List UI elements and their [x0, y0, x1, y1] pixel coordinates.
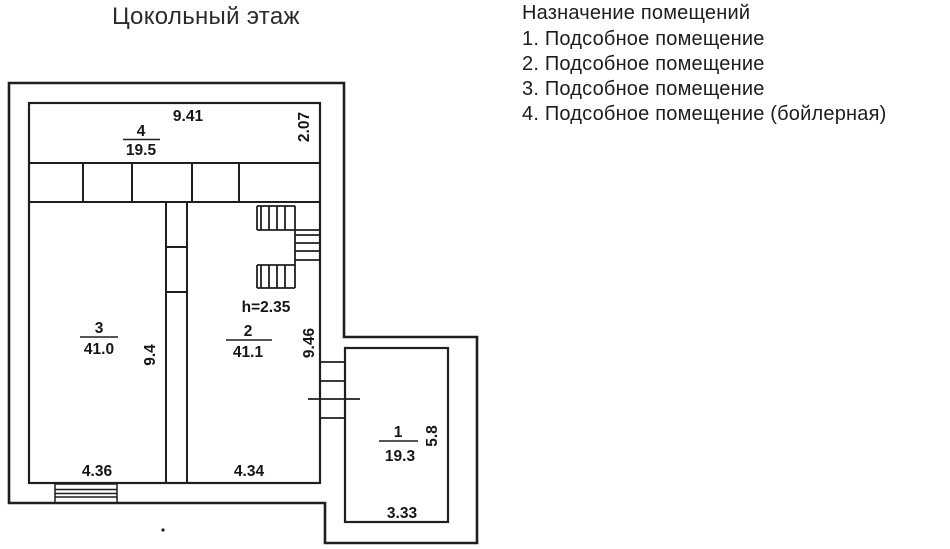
room-1-number: 1	[394, 424, 403, 441]
scan-speck	[161, 528, 164, 531]
partition-wall	[166, 202, 187, 483]
room-2-area: 41.1	[233, 344, 264, 361]
dim-room-1-height: 5.8	[424, 425, 441, 447]
room-label-fraction-bars	[80, 140, 418, 442]
ceiling-height-note: h=2.35	[242, 299, 291, 316]
dim-room-3-width: 4.36	[82, 463, 113, 480]
legend: Назначение помещений 1. Подсобное помеще…	[522, 1, 886, 127]
window-icon	[55, 484, 117, 503]
legend-heading: Назначение помещений	[522, 1, 886, 26]
dim-room-4-width: 9.41	[173, 108, 204, 125]
room-4-area: 19.5	[126, 142, 157, 159]
dim-room-3-height: 9.4	[142, 344, 159, 366]
floor-plan-drawing: 4 19.5 9.41 2.07 3 41.0 4.36 9.4 2 41.1 …	[0, 0, 490, 549]
legend-item-3: 3. Подсобное помещение	[522, 77, 886, 102]
dim-room-2-width: 4.34	[234, 463, 265, 480]
room-3-area: 41.0	[84, 341, 114, 358]
scanned-floor-plan-page: Цокольный этаж Назначение помещений 1. П…	[0, 0, 950, 549]
door-opening	[308, 362, 360, 418]
dim-room-1-width: 3.33	[387, 505, 418, 522]
dim-room-4-height: 2.07	[296, 112, 313, 142]
niche-band	[29, 163, 320, 202]
stairs-icon	[257, 206, 320, 288]
room-4-number: 4	[137, 123, 146, 140]
legend-item-1: 1. Подсобное помещение	[522, 27, 886, 52]
room-3-number: 3	[95, 320, 104, 337]
legend-item-4: 4. Подсобное помещение (бойлерная)	[522, 102, 886, 127]
dim-room-2-height: 9.46	[301, 328, 318, 359]
room-1-area: 19.3	[385, 448, 416, 465]
room-2-number: 2	[244, 323, 253, 340]
legend-item-2: 2. Подсобное помещение	[522, 52, 886, 77]
